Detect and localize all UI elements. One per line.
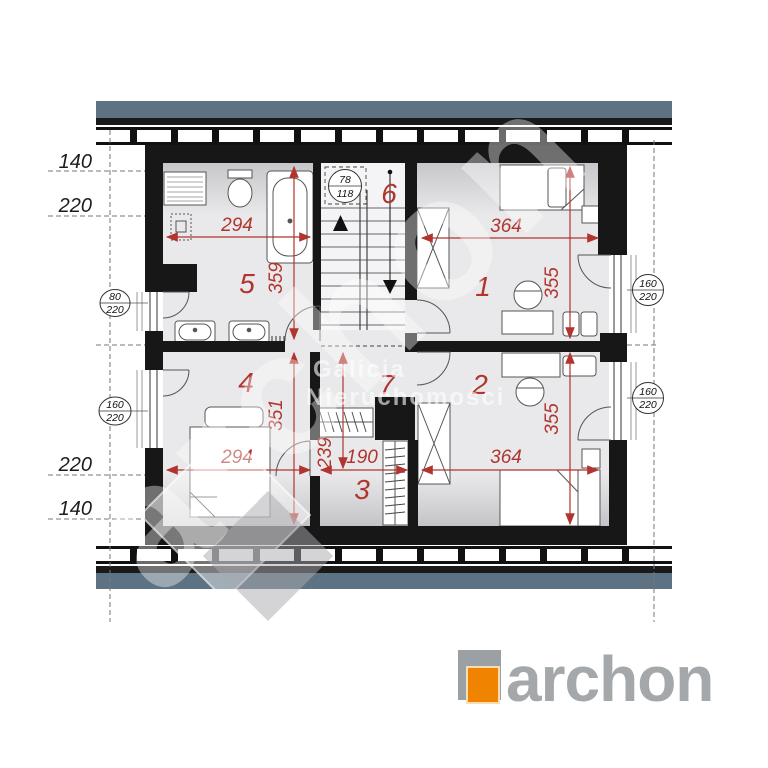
nightstand [582, 449, 600, 468]
archon-logo: archon [458, 643, 713, 715]
svg-text:220: 220 [105, 304, 124, 316]
dim-room1-height: 355 [542, 267, 563, 299]
dim-room2-height: 355 [542, 403, 563, 435]
height-label-140-top: 140 [59, 151, 92, 173]
desk [502, 311, 553, 334]
svg-text:160: 160 [106, 399, 124, 411]
wardrobe [418, 403, 450, 484]
side-table [563, 356, 596, 376]
chair [516, 378, 544, 406]
logo-brand-text: archon [506, 643, 713, 715]
window-right-bottom [609, 362, 636, 440]
callout-right-bottom: 160 220 [627, 383, 664, 414]
closet [383, 441, 408, 525]
bed [500, 470, 600, 526]
floorplan-drawing: 294 359 364 355 294 351 239 190 364 355 … [0, 0, 768, 768]
svg-text:80: 80 [109, 291, 121, 303]
logo-orange-square [467, 667, 499, 703]
svg-text:160: 160 [639, 386, 657, 398]
desk [502, 353, 560, 377]
side-table [563, 312, 579, 336]
svg-text:160: 160 [639, 278, 657, 290]
callout-left-top: 80 220 [100, 290, 148, 317]
top-eave-band [96, 101, 672, 145]
svg-text:78: 78 [339, 174, 351, 186]
watermark-agency-line1: Galicja [313, 356, 406, 383]
height-label-220-top: 220 [58, 195, 92, 217]
washing-machine [164, 172, 206, 205]
window-left-top [137, 292, 163, 331]
floorplan-page: 294 359 364 355 294 351 239 190 364 355 … [0, 0, 768, 768]
watermark-agency-line2: Nieruchomości [306, 384, 505, 411]
dim-room2-width: 364 [490, 447, 522, 468]
room-label-3: 3 [354, 474, 370, 505]
window-right-top [609, 255, 636, 333]
dim-bath-width: 294 [220, 215, 253, 236]
svg-text:220: 220 [638, 291, 657, 303]
side-table [581, 312, 597, 336]
toilet [228, 170, 252, 207]
callout-right-top: 160 220 [627, 275, 664, 306]
svg-text:220: 220 [638, 399, 657, 411]
